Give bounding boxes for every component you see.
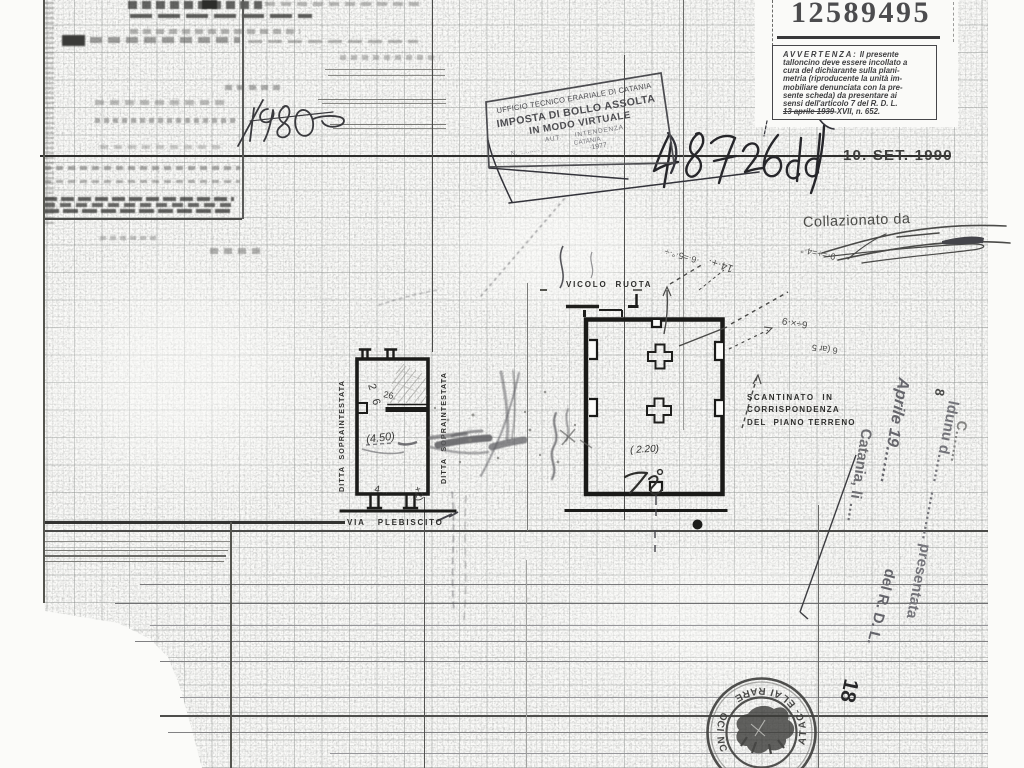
svg-text:14·+·: 14·+· — [706, 254, 735, 274]
svg-text:9·=+=4·°: 9·=+=4·° — [799, 245, 836, 262]
svg-text:Aprile 19…….: Aprile 19……. — [876, 375, 913, 485]
svg-text:18: 18 — [835, 677, 862, 705]
svg-text:6 (ar 5: 6 (ar 5 — [811, 342, 838, 356]
svg-text:26.: 26. — [383, 389, 397, 401]
svg-text:( 2.20): ( 2.20) — [630, 444, 659, 456]
svg-text:6÷×·9: 6÷×·9 — [781, 314, 809, 329]
svg-text:A: A — [750, 685, 758, 697]
svg-text:Catania, li ….: Catania, li …. — [843, 427, 875, 523]
svg-text:+2): +2) — [411, 485, 425, 502]
svg-text:C: C — [716, 743, 729, 753]
svg-text:A: A — [797, 721, 809, 729]
svg-text:4...: 4... — [374, 484, 389, 497]
svg-text:N: N — [714, 736, 726, 744]
svg-text:del R. D. L.: del R. D. L. — [863, 567, 898, 646]
svg-text:R: R — [757, 684, 766, 696]
svg-text:6: 6 — [369, 397, 382, 407]
svg-text:DITTA SOPRAINTESTATA: DITTA SOPRAINTESTATA — [439, 372, 448, 484]
svg-text:N. ………: N. ……… — [510, 146, 540, 158]
svg-text:·6·=5·°·÷: ·6·=5·°·÷ — [663, 246, 700, 265]
svg-text:T: T — [798, 730, 810, 737]
svg-text:8: 8 — [932, 387, 948, 397]
svg-text:DITTA SOPRAINTESTATA: DITTA SOPRAINTESTATA — [337, 380, 346, 492]
svg-text:2: 2 — [365, 382, 378, 392]
svg-text:ldunu d…… ………. presentata: ldunu d…… ………. presentata — [903, 399, 962, 620]
